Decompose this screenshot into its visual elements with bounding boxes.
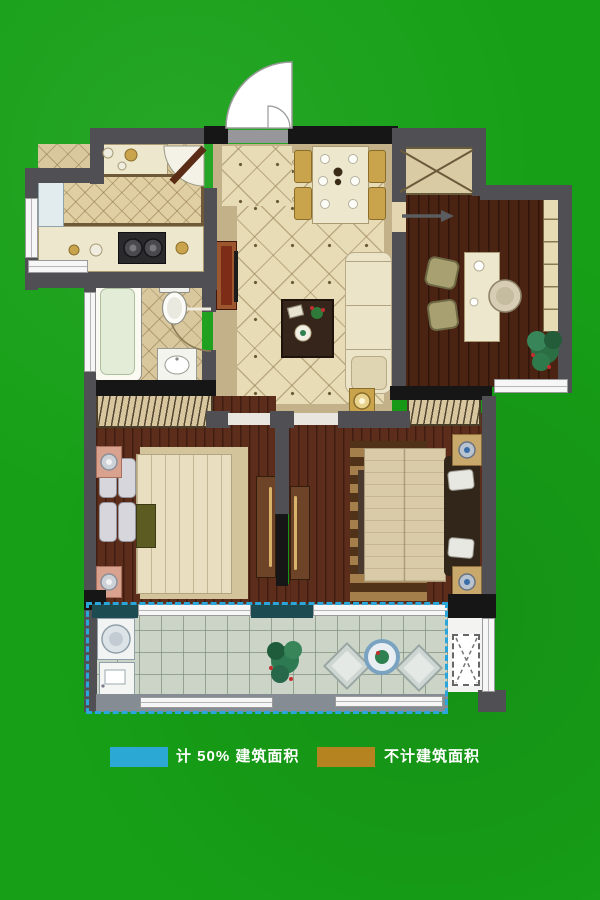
wall-kitchen-top [90, 128, 218, 144]
wall-dining-study-lower [392, 232, 406, 388]
wall-entry-jamb [204, 126, 228, 144]
wall-study-bottom [390, 386, 492, 400]
study-desk [464, 252, 500, 342]
sliding-door-panel [256, 476, 276, 578]
legend-label-50pct-area: 计 50% 建筑面积 [176, 746, 299, 768]
study-door-threshold [392, 202, 406, 232]
wall-dining-study-upper [392, 144, 406, 202]
wall-living-bottom-left [206, 411, 230, 428]
wall-bedroom-divider-track [276, 514, 288, 586]
sofa-chaise-cushion [351, 356, 387, 390]
entry-door-arc [226, 62, 292, 128]
wall-ac-bottom [478, 690, 506, 712]
tv-screen [234, 251, 238, 302]
wall-living-bottom-right [338, 411, 410, 428]
legend-label-excluded-area: 不计建筑面积 [384, 746, 480, 768]
wall-bath-bottom [84, 380, 216, 396]
pillow [447, 537, 475, 559]
wall-bedroom-right [482, 396, 496, 598]
nightstand [452, 434, 482, 466]
wall-bedroom-left [84, 396, 96, 610]
wall-study-right [558, 195, 572, 393]
wall-corner-bottom-right [448, 594, 496, 618]
refrigerator [38, 180, 64, 227]
dining-chair [368, 150, 386, 183]
wall-bedroom-divider-stub [270, 411, 294, 428]
door-handle [269, 487, 272, 567]
ac-outdoor-unit-box [452, 634, 480, 686]
flue-shaft [396, 147, 476, 195]
study-window [494, 379, 568, 393]
legend-swatch-50pct-area [110, 747, 168, 767]
kitchen-low-window [28, 260, 88, 273]
floor-plan [0, 0, 600, 900]
pillow [118, 502, 136, 542]
door-handle [294, 496, 297, 570]
bathtub [93, 280, 142, 382]
sliding-door-panel [290, 486, 310, 580]
stove [118, 232, 166, 264]
entry-door-sill [228, 130, 290, 143]
dining-chair [368, 187, 386, 220]
pillow [99, 502, 117, 542]
bedroom-right-door-threshold [294, 413, 338, 425]
guest-chair [426, 298, 460, 332]
wardrobe-left [96, 392, 213, 428]
wall-dining-top [288, 126, 398, 144]
bed-left-throw [136, 504, 156, 548]
dining-chair [294, 150, 312, 183]
green-lawn-background: { "colors": { "green-bg": "#17a017", "wa… [0, 0, 600, 900]
bedroom-left-door-threshold [228, 413, 270, 425]
bed-right [364, 448, 446, 582]
bathtub-basin [100, 288, 135, 375]
ac-platform-window [482, 618, 495, 692]
pillow [447, 469, 475, 492]
balcony-dashed-outline [86, 602, 448, 714]
bathroom-sink [157, 348, 197, 383]
nightstand [96, 446, 122, 478]
dining-table [312, 146, 369, 224]
wall-kitchen-bottom [25, 272, 217, 288]
dining-chair [294, 187, 312, 220]
guest-chair [423, 255, 461, 291]
kitchen-window [25, 198, 38, 258]
wall-bath-right-upper [202, 288, 216, 312]
bathroom-window [84, 292, 96, 372]
wardrobe-right [407, 398, 481, 426]
legend-swatch-excluded-area [317, 747, 375, 767]
entry-foyer-floor [222, 146, 292, 206]
wall-bedroom-divider [275, 428, 289, 514]
